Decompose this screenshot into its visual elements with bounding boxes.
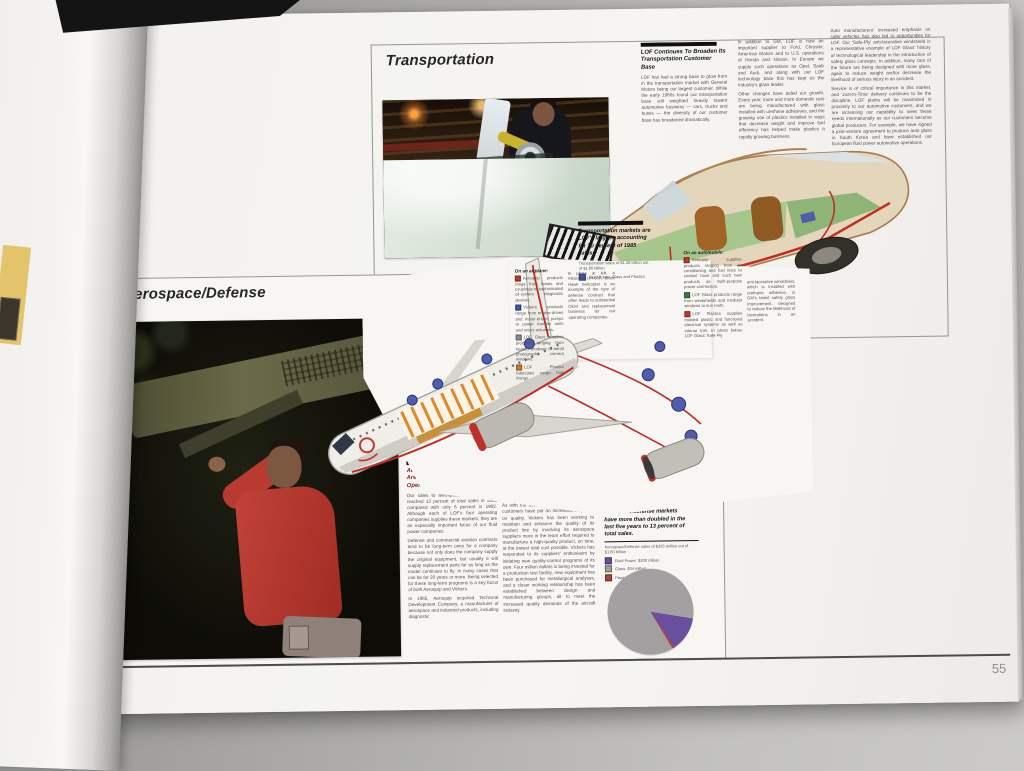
list-item: LOF Glass supplies products ranging from… bbox=[516, 334, 564, 362]
list-item: LOF Plastics supplies molded plastic and… bbox=[684, 310, 742, 339]
book-right-page: Transportation bbox=[93, 4, 1019, 715]
body-paragraph: As with the automotive industry, aerospa… bbox=[502, 502, 596, 614]
legend-swatch-plastics bbox=[605, 574, 612, 581]
pants-pocket bbox=[289, 625, 309, 649]
transportation-caption-text: Transportation markets are LOF's largest… bbox=[578, 228, 652, 258]
transportation-article-heading: LOF Continues To Broaden Its Transportat… bbox=[641, 49, 727, 72]
helicopter-photo-caption: In photo at left, a Sikorsky UH-60A Blac… bbox=[568, 270, 616, 322]
heading-bar bbox=[578, 221, 643, 226]
list-item: Vickers products range from engine-drive… bbox=[515, 304, 563, 332]
automobile-list-heading: On an automobile: bbox=[683, 249, 741, 255]
automobile-products-list: On an automobile: Aeroquip supplies prod… bbox=[683, 249, 742, 340]
body-paragraph: Other changes have aided our growth. Eve… bbox=[738, 90, 825, 140]
body-paragraph: LOF has had a strong base to grow from i… bbox=[641, 73, 728, 123]
transportation-article-col1: LOF Continues To Broaden Its Transportat… bbox=[641, 42, 728, 145]
list-item: LOF Plastics fabricates cargo hold linin… bbox=[516, 364, 564, 382]
legend-swatch-glass bbox=[605, 566, 612, 573]
legend-row: Fluid Power: $200 million bbox=[605, 556, 699, 564]
list-item: LOF Glass products range from windshield… bbox=[684, 291, 742, 309]
list-item: Aeroquip supplies products ranging from … bbox=[684, 256, 742, 290]
heading-bar bbox=[641, 42, 717, 47]
pump-cluster-right bbox=[642, 341, 697, 443]
body-paragraph: Auto manufacturers' increased emphasis o… bbox=[830, 27, 931, 84]
airplane-list-heading: On an airplane: bbox=[515, 268, 563, 274]
previous-page-photo bbox=[0, 297, 21, 341]
rear-seat bbox=[750, 195, 784, 242]
front-seat bbox=[694, 205, 728, 252]
automobile-caption-continuation: anti-lacerative windshield, which is ins… bbox=[747, 279, 796, 325]
body-paragraph: Service is of critical importance in thi… bbox=[831, 85, 932, 147]
page-number: 55 bbox=[992, 661, 1007, 676]
body-paragraph: In 1985, Aeroquip acquired Technical Dev… bbox=[408, 595, 498, 621]
airplane-cutaway-illustration bbox=[247, 254, 721, 521]
body-paragraph: Defense and commercial aviation contract… bbox=[407, 537, 498, 594]
transportation-article-col2: In addition to GM, LOF is now an importa… bbox=[738, 38, 826, 151]
desk-background: Transportation bbox=[0, 0, 1024, 771]
transportation-title: Transportation bbox=[386, 51, 495, 70]
legend-label: Fluid Power: $200 million bbox=[615, 557, 660, 563]
aerospace-title: Aerospace/Defense bbox=[123, 284, 266, 303]
body-paragraph: In addition to GM, LOF is now an importa… bbox=[738, 38, 825, 88]
airplane-products-list: On an airplane: Aeroquip products range … bbox=[515, 268, 565, 384]
transportation-article-col3: Auto manufacturers' increased emphasis o… bbox=[830, 27, 932, 146]
detached-engine bbox=[640, 434, 708, 482]
legend-swatch-fluid-power bbox=[605, 557, 612, 564]
list-item: Aeroquip products range from hoses and c… bbox=[515, 274, 563, 302]
legend-title: Aerospace/Defense sales of $235 million … bbox=[605, 543, 699, 555]
